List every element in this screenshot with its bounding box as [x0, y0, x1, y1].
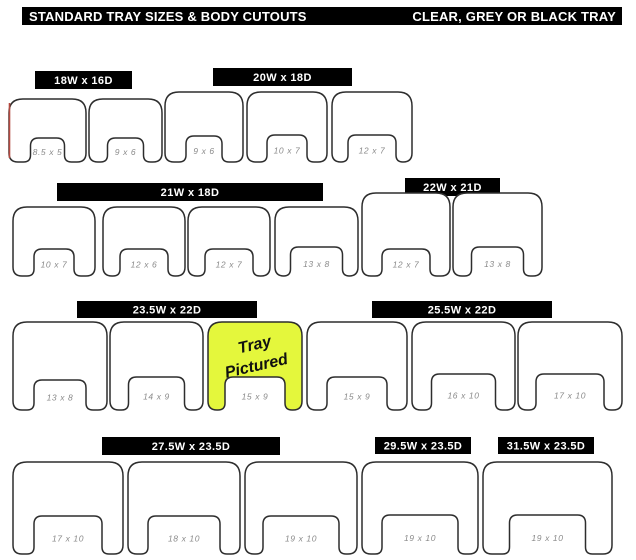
tray-cutout-size-label: 19 x 10	[404, 533, 436, 543]
tray-cutout-size-label: 13 x 8	[47, 393, 74, 403]
size-group-header-label: 27.5W x 23.5D	[152, 441, 231, 453]
tray-cutout-size-label: 14 x 9	[143, 391, 170, 401]
size-group-header-label: 20W x 18D	[253, 72, 312, 84]
size-group-header-label: 29.5W x 23.5D	[384, 441, 463, 453]
size-group-header-label: 31.5W x 23.5D	[507, 441, 586, 453]
tray-cutout-size-label: 9 x 6	[193, 146, 214, 156]
tray-cutout-size-label: 13 x 8	[484, 259, 511, 269]
tray-cutout-size-label: 12 x 7	[393, 260, 420, 270]
tray-cutout-size-label: 10 x 7	[41, 260, 68, 270]
tray-diagram: 18W x 16D8.5 x 59 x 620W x 18D9 x 610 x …	[0, 0, 636, 560]
tray-cutout-size-label: 17 x 10	[52, 534, 84, 544]
tray-cutout-size-label: 12 x 6	[131, 260, 158, 270]
tray-cutout-size-label: 9 x 6	[115, 147, 136, 157]
tray-cutout-size-label: 10 x 7	[274, 146, 301, 156]
tray-cutout-size-label: 15 x 9	[344, 391, 371, 401]
tray-cutout-size-label: 15 x 9	[242, 391, 269, 401]
tray-cutout-size-label: 12 x 7	[216, 260, 243, 270]
tray-cutout-size-label: 12 x 7	[359, 146, 386, 156]
size-group-header-label: 18W x 16D	[54, 75, 113, 87]
size-group-header-label: 25.5W x 22D	[428, 305, 497, 317]
tray-cutout-size-label: 13 x 8	[303, 259, 330, 269]
tray-cutout-size-label: 19 x 10	[531, 533, 563, 543]
size-group-header-label: 21W x 18D	[161, 187, 220, 199]
tray-cutout-size-label: 8.5 x 5	[33, 147, 63, 157]
size-group-header-label: 23.5W x 22D	[133, 305, 202, 317]
tray-cutout-size-label: 16 x 10	[447, 390, 479, 400]
tray-cutout-size-label: 17 x 10	[554, 390, 586, 400]
tray-cutout-size-label: 18 x 10	[168, 534, 200, 544]
tray-cutout-size-label: 19 x 10	[285, 534, 317, 544]
tray-size-sheet: STANDARD TRAY SIZES & BODY CUTOUTS CLEAR…	[0, 0, 636, 560]
